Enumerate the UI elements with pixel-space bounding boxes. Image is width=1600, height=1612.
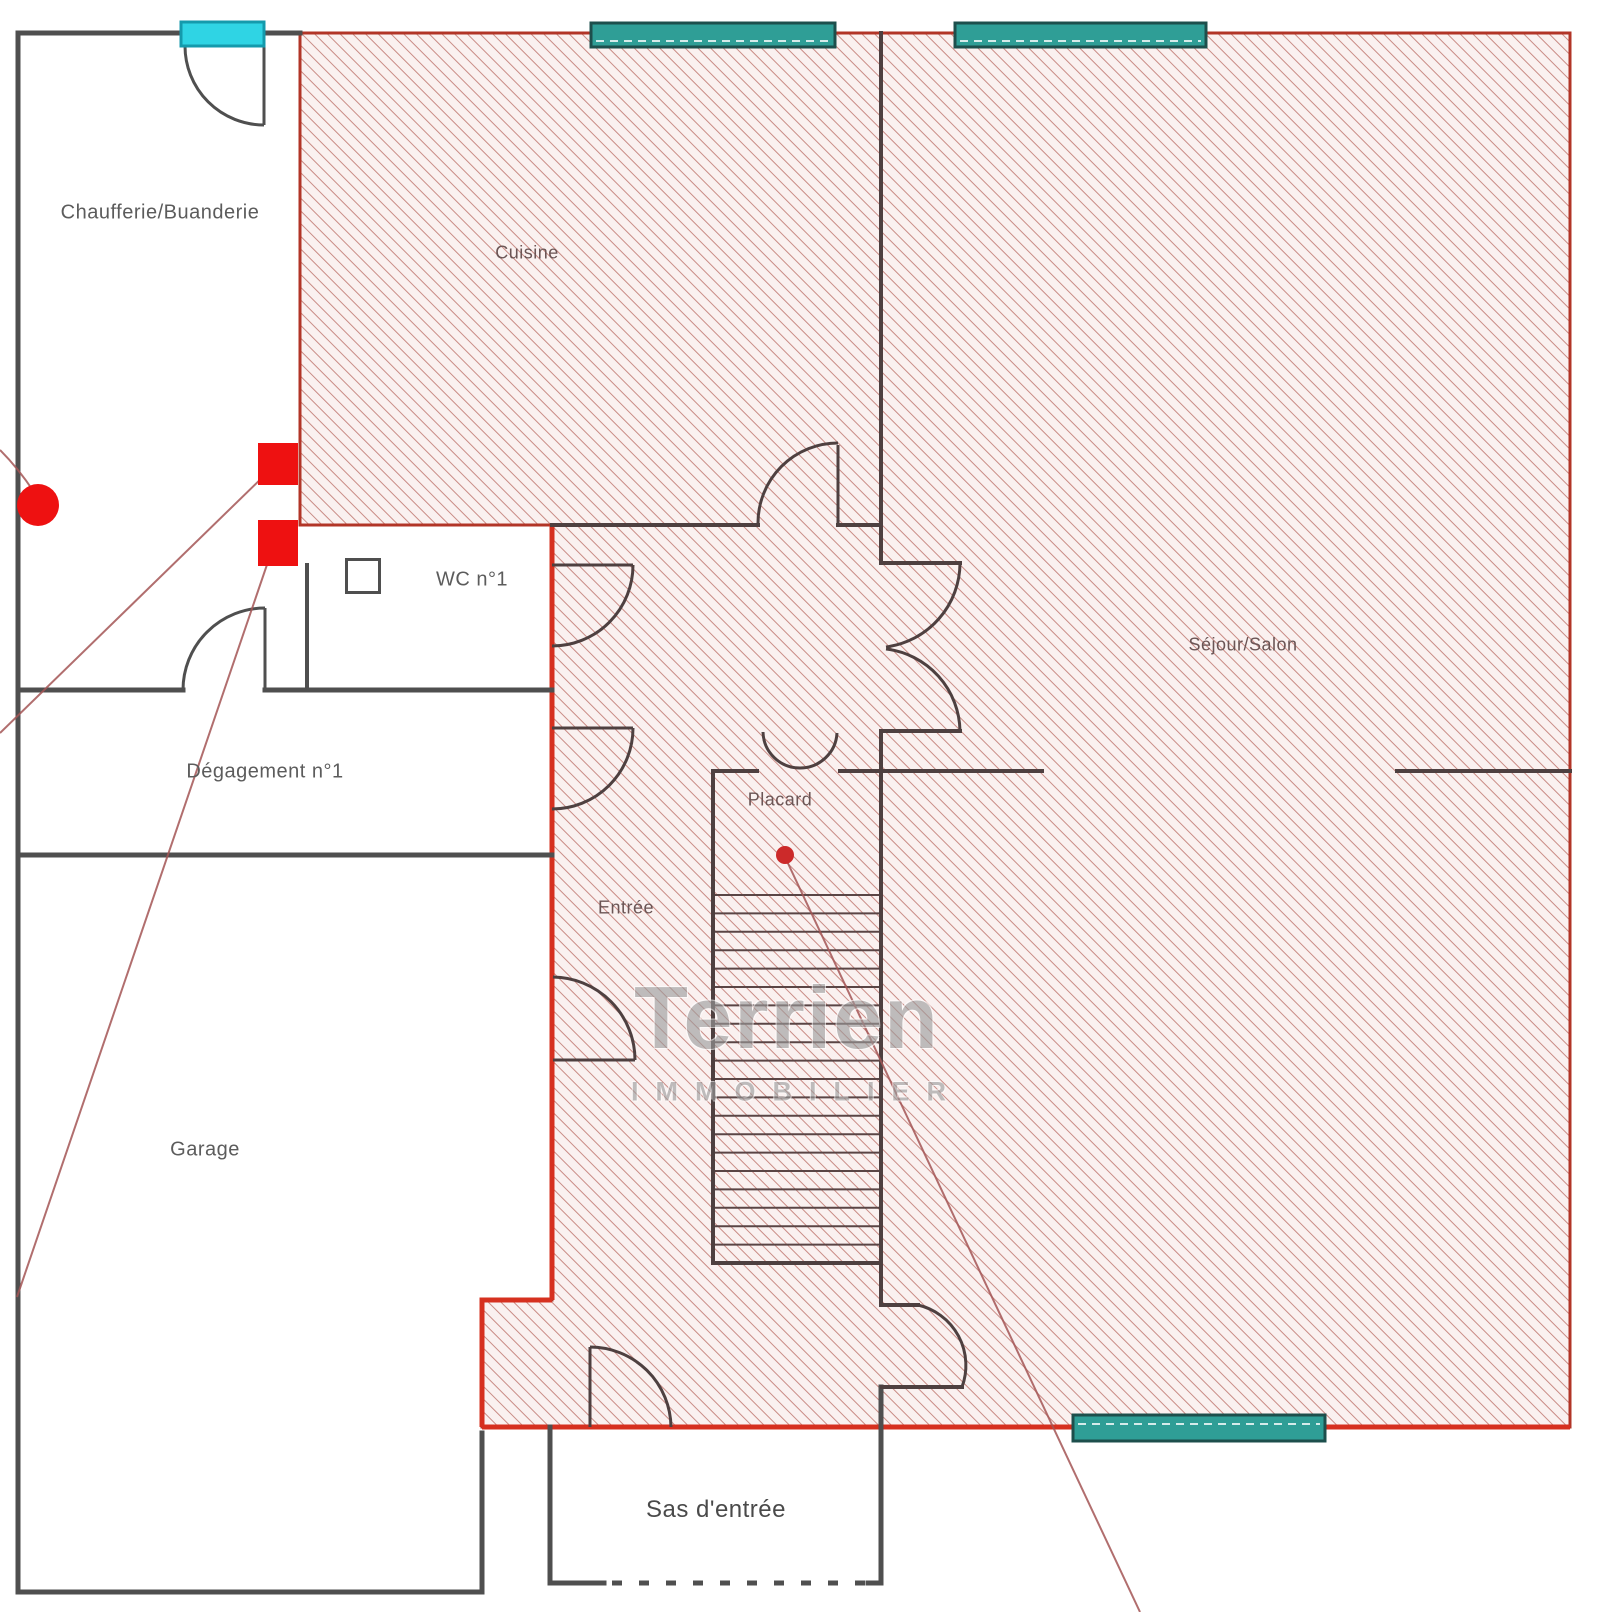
room-label-entree: Entrée bbox=[598, 898, 654, 919]
room-label-cuisine: Cuisine bbox=[495, 243, 559, 264]
red-square-marker-1 bbox=[258, 443, 298, 485]
placard-dot-marker bbox=[776, 846, 794, 864]
red-circle-marker bbox=[17, 484, 59, 526]
red-square-marker-2 bbox=[258, 520, 298, 566]
window-bottom bbox=[1073, 1415, 1325, 1441]
door-chaufferie bbox=[183, 608, 265, 690]
room-label-sejour: Séjour/Salon bbox=[1188, 635, 1297, 656]
room-label-wc1: WC n°1 bbox=[436, 569, 508, 592]
room-label-garage: Garage bbox=[170, 1139, 240, 1162]
wc-fixture-icon bbox=[345, 558, 381, 594]
door-chaufferie-exterior bbox=[185, 46, 264, 125]
window-top-2 bbox=[955, 23, 1206, 47]
entry-door-leaf-cyan bbox=[181, 22, 264, 46]
room-label-degagement: Dégagement n°1 bbox=[186, 761, 343, 784]
window-top-1 bbox=[591, 23, 835, 47]
room-label-chaufferie: Chaufferie/Buanderie bbox=[61, 202, 260, 225]
watermark-subtitle: IMMOBILIER bbox=[631, 1077, 963, 1108]
watermark-brand: Terrien bbox=[634, 967, 940, 1069]
highlight-border-left bbox=[482, 525, 552, 1427]
floor-plan: Chaufferie/Buanderie Cuisine WC n°1 Déga… bbox=[0, 0, 1600, 1612]
room-label-placard: Placard bbox=[748, 790, 813, 811]
room-label-sas: Sas d'entrée bbox=[646, 1496, 786, 1524]
